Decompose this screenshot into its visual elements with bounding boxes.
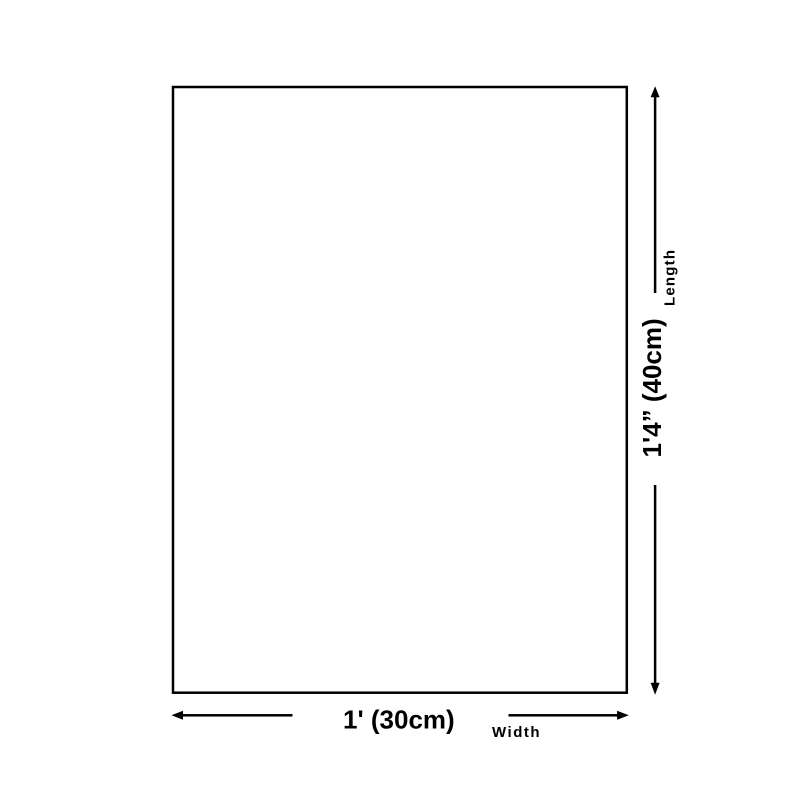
svg-text:1' (30cm): 1' (30cm) [343, 705, 455, 735]
svg-text:Length: Length [662, 249, 679, 306]
svg-text:Width: Width [492, 724, 541, 741]
svg-text:1'4” (40cm): 1'4” (40cm) [637, 318, 667, 457]
